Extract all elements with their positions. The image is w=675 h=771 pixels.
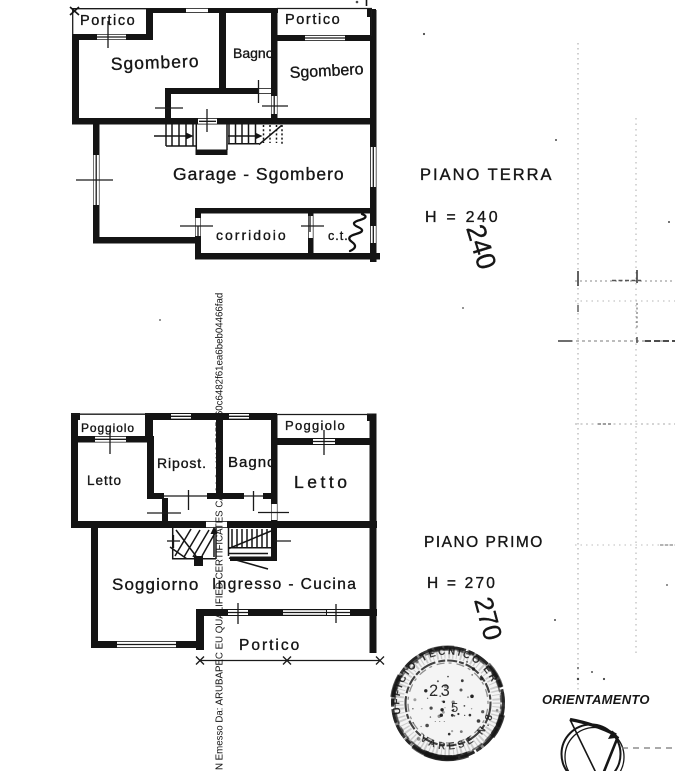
svg-text:c.t.: c.t. bbox=[328, 229, 349, 243]
svg-text:Letto: Letto bbox=[294, 472, 350, 492]
svg-text:Soggiorno: Soggiorno bbox=[112, 575, 199, 594]
svg-text:N Emesso Da: ARUBAPEC EU QUALI: N Emesso Da: ARUBAPEC EU QUALIFIED CERTI… bbox=[215, 293, 226, 770]
svg-text:Portico: Portico bbox=[285, 12, 341, 28]
svg-text:Poggiolo: Poggiolo bbox=[285, 418, 346, 433]
svg-text:PIANO PRIMO: PIANO PRIMO bbox=[424, 534, 544, 551]
svg-text:23: 23 bbox=[429, 682, 452, 700]
svg-text:corridoio: corridoio bbox=[216, 227, 288, 243]
svg-text:Ripost.: Ripost. bbox=[157, 455, 207, 471]
svg-text:Portico: Portico bbox=[239, 637, 301, 654]
svg-text:Poggiolo: Poggiolo bbox=[81, 421, 135, 435]
svg-text:Garage - Sgombero: Garage - Sgombero bbox=[173, 164, 345, 184]
svg-text:Portico: Portico bbox=[80, 13, 136, 29]
svg-text:Letto: Letto bbox=[87, 473, 122, 488]
svg-text:Bagno: Bagno bbox=[228, 454, 276, 471]
svg-text:Bagno: Bagno bbox=[233, 45, 274, 61]
svg-text:Ingresso - Cucina: Ingresso - Cucina bbox=[212, 576, 357, 593]
svg-text:ORIENTAMENTO: ORIENTAMENTO bbox=[542, 692, 650, 707]
svg-text:PIANO TERRA: PIANO TERRA bbox=[420, 166, 554, 184]
svg-text:H = 270: H = 270 bbox=[427, 575, 497, 592]
svg-text:Sgombero: Sgombero bbox=[110, 51, 199, 74]
